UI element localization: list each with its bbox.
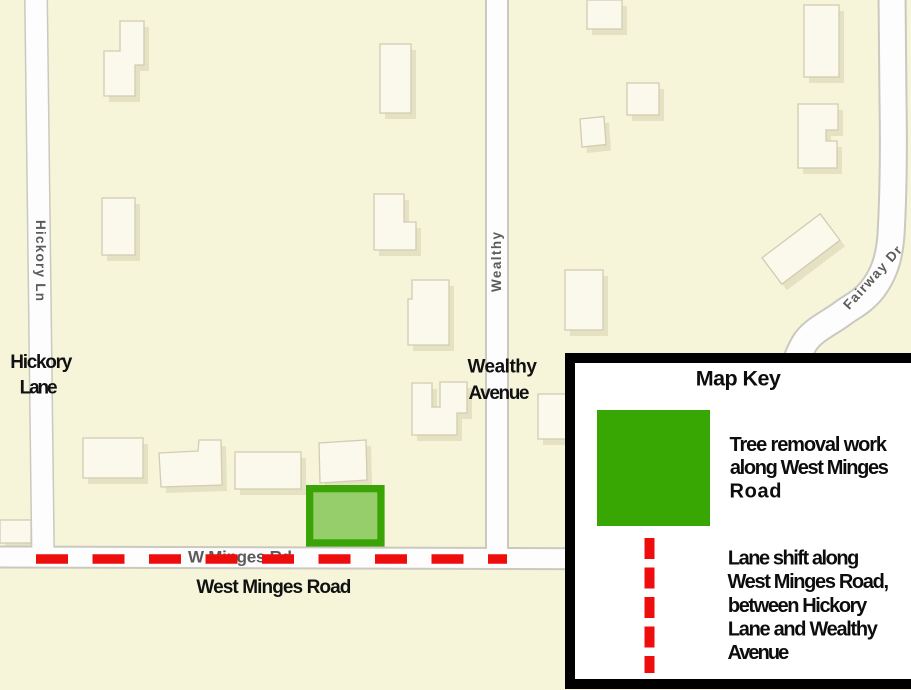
svg-text:Wealthy: Wealthy	[467, 357, 537, 378]
svg-text:West Minges Road: West Minges Road	[196, 577, 351, 598]
svg-text:Lane and Wealthy: Lane and Wealthy	[728, 618, 879, 640]
svg-text:Road: Road	[730, 480, 782, 502]
svg-text:along West Minges: along West Minges	[730, 457, 889, 479]
svg-text:Tree removal work: Tree removal work	[730, 434, 888, 456]
svg-text:Hickory: Hickory	[10, 352, 72, 373]
svg-text:Lane: Lane	[20, 378, 58, 399]
svg-text:Avenue: Avenue	[469, 383, 530, 404]
svg-text:Map Key: Map Key	[696, 367, 781, 391]
svg-text:between Hickory: between Hickory	[728, 595, 868, 617]
svg-text:Avenue: Avenue	[728, 642, 790, 664]
svg-text:West Minges Road,: West Minges Road,	[728, 571, 890, 593]
svg-text:Lane shift along: Lane shift along	[728, 547, 859, 569]
svg-text:Hickory Ln: Hickory Ln	[33, 220, 48, 301]
